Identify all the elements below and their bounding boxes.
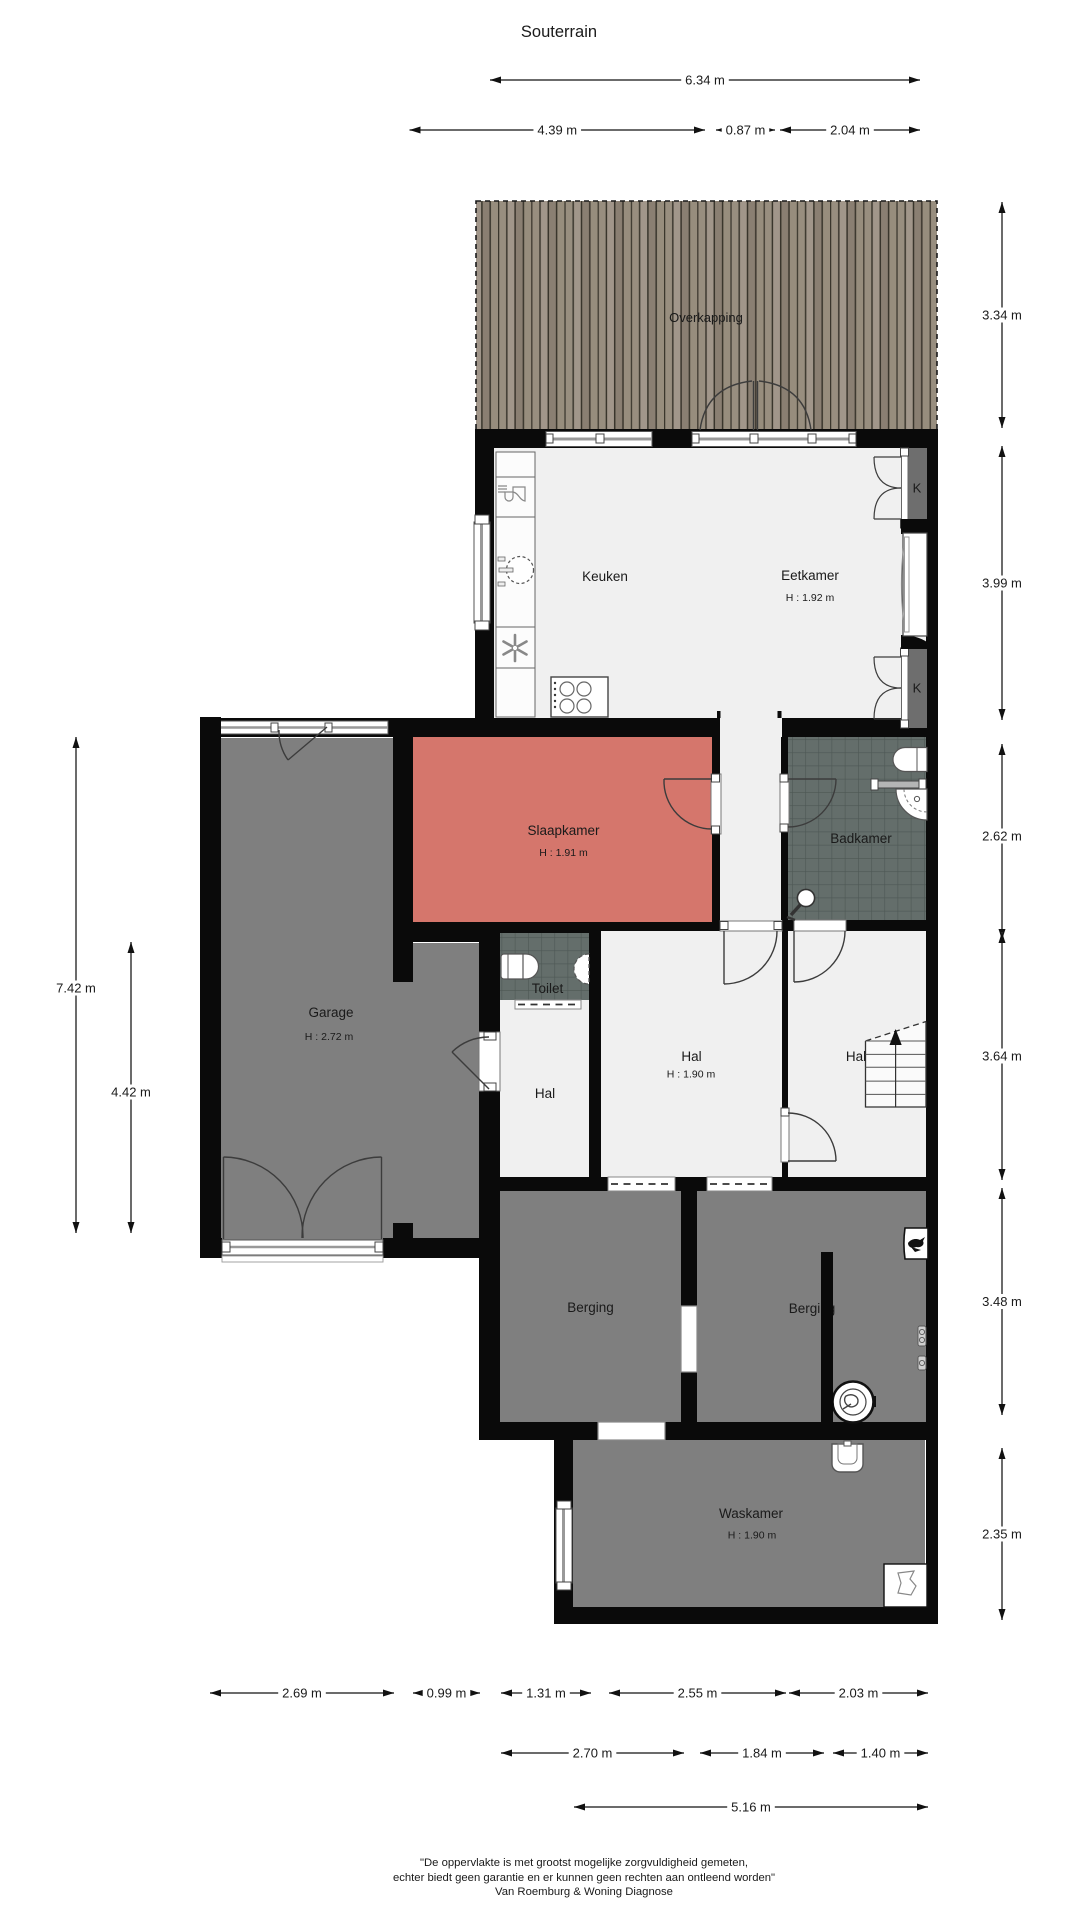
svg-text:3.64 m: 3.64 m bbox=[982, 1049, 1022, 1064]
svg-text:Eetkamer: Eetkamer bbox=[781, 568, 839, 583]
svg-text:Hal: Hal bbox=[681, 1049, 701, 1064]
svg-text:4.42 m: 4.42 m bbox=[111, 1085, 151, 1100]
svg-text:Slaapkamer: Slaapkamer bbox=[527, 823, 600, 838]
svg-text:Badkamer: Badkamer bbox=[830, 831, 892, 846]
svg-text:5.16 m: 5.16 m bbox=[731, 1800, 771, 1815]
svg-text:2.35 m: 2.35 m bbox=[982, 1527, 1022, 1542]
svg-text:H : 1.90 m: H : 1.90 m bbox=[667, 1069, 716, 1081]
svg-text:3.99 m: 3.99 m bbox=[982, 576, 1022, 591]
svg-text:H : 2.72 m: H : 2.72 m bbox=[305, 1031, 354, 1043]
svg-text:Berging: Berging bbox=[567, 1300, 614, 1315]
svg-text:Overkapping: Overkapping bbox=[669, 310, 743, 325]
svg-text:K: K bbox=[913, 481, 922, 496]
svg-text:Van Roemburg & Woning Diagnose: Van Roemburg & Woning Diagnose bbox=[495, 1886, 673, 1898]
svg-text:2.69 m: 2.69 m bbox=[282, 1686, 322, 1701]
svg-text:H : 1.90 m: H : 1.90 m bbox=[728, 1530, 777, 1542]
svg-text:2.62 m: 2.62 m bbox=[982, 829, 1022, 844]
svg-text:6.34 m: 6.34 m bbox=[685, 73, 725, 88]
svg-text:H : 1.91 m: H : 1.91 m bbox=[539, 847, 588, 859]
svg-text:0.87 m: 0.87 m bbox=[726, 123, 766, 138]
svg-text:Hal: Hal bbox=[846, 1049, 866, 1064]
svg-text:"De oppervlakte is met grootst: "De oppervlakte is met grootst mogelijke… bbox=[420, 1857, 748, 1869]
svg-text:1.84 m: 1.84 m bbox=[742, 1746, 782, 1761]
svg-text:echter biedt geen garantie en: echter biedt geen garantie en er kunnen … bbox=[393, 1872, 775, 1884]
svg-text:1.40 m: 1.40 m bbox=[861, 1746, 901, 1761]
svg-text:2.55 m: 2.55 m bbox=[678, 1686, 718, 1701]
svg-text:2.70 m: 2.70 m bbox=[573, 1746, 613, 1761]
svg-text:1.31 m: 1.31 m bbox=[526, 1686, 566, 1701]
svg-text:Hal: Hal bbox=[535, 1086, 555, 1101]
svg-text:Souterrain: Souterrain bbox=[521, 23, 597, 41]
svg-text:3.48 m: 3.48 m bbox=[982, 1294, 1022, 1309]
svg-text:3.34 m: 3.34 m bbox=[982, 308, 1022, 323]
svg-text:Garage: Garage bbox=[308, 1005, 353, 1020]
svg-text:Waskamer: Waskamer bbox=[719, 1506, 784, 1521]
svg-text:0.99 m: 0.99 m bbox=[427, 1686, 467, 1701]
svg-text:K: K bbox=[913, 681, 922, 696]
svg-text:2.04 m: 2.04 m bbox=[830, 123, 870, 138]
svg-text:4.39 m: 4.39 m bbox=[537, 123, 577, 138]
svg-text:Keuken: Keuken bbox=[582, 569, 628, 584]
svg-text:H : 1.92 m: H : 1.92 m bbox=[786, 592, 835, 604]
svg-text:2.03 m: 2.03 m bbox=[839, 1686, 879, 1701]
svg-text:Toilet: Toilet bbox=[532, 981, 564, 996]
svg-text:7.42 m: 7.42 m bbox=[56, 981, 96, 996]
